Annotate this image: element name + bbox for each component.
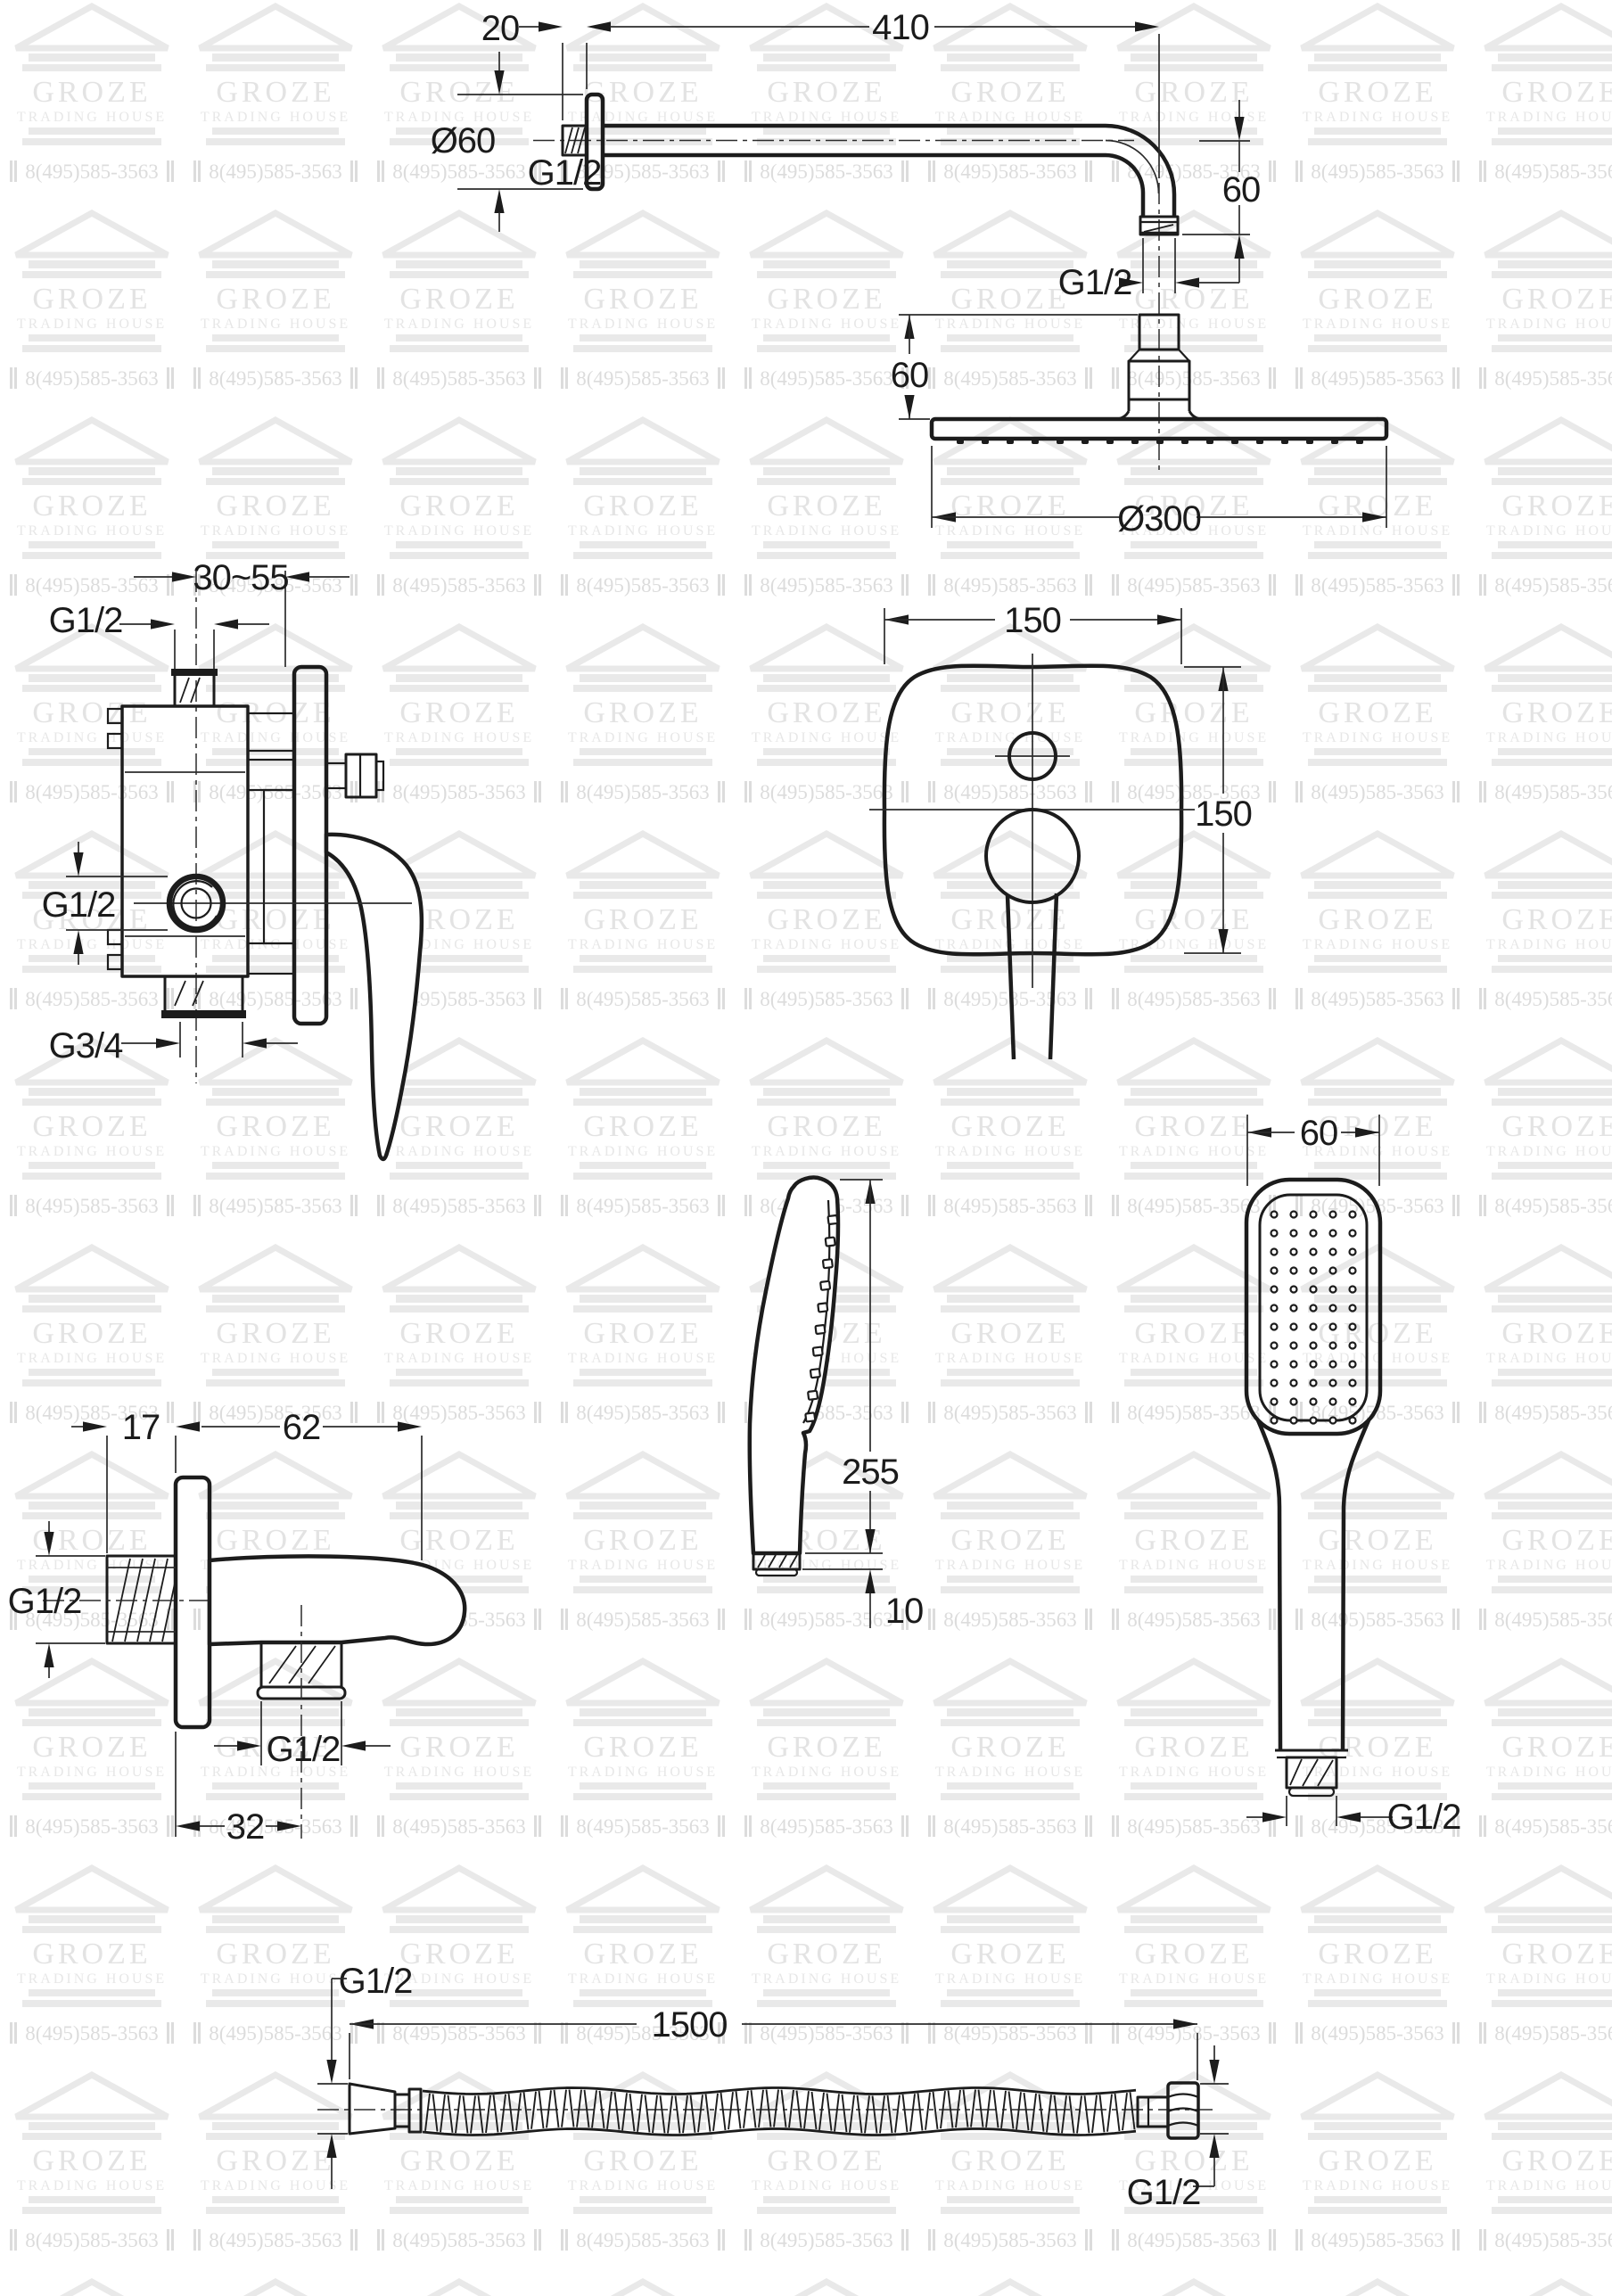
watermark-subtitle: TRADING HOUSE [752,937,901,952]
pediment-icon [934,1661,1086,1703]
watermark-tile: GROZETRADING HOUSE8(495)585-3563 [10,1661,174,1838]
watermark-phone: 8(495)585-3563 [1494,367,1612,390]
pediment-icon [1118,834,1270,876]
watermark-tile: GROZETRADING HOUSE8(495)585-3563 [193,213,358,390]
label-elbow-outlet-thread: G1/2 [267,1730,341,1769]
watermark-phone: 8(495)585-3563 [392,160,525,183]
watermark-phone: 8(495)585-3563 [760,574,892,597]
watermark-subtitle: TRADING HOUSE [1486,1971,1612,1987]
pediment-icon [383,1247,535,1289]
watermark-phone: 8(495)585-3563 [209,1195,341,1217]
technical-drawing-canvas: GROZETRADING HOUSE8(495)585-3563GROZETRA… [0,0,1612,2296]
watermark-subtitle: TRADING HOUSE [568,317,718,332]
pediment-icon [200,2282,351,2296]
dim-arm-stub: 20 [481,9,520,48]
watermark-subtitle: TRADING HOUSE [384,317,534,332]
watermark-phone: 8(495)585-3563 [1127,1402,1260,1424]
watermark-phone: 8(495)585-3563 [943,2022,1076,2045]
watermark-tile: GROZETRADING HOUSE8(495)585-3563 [1479,834,1612,1010]
watermark-tile: GROZETRADING HOUSE8(495)585-3563 [744,420,909,597]
watermark-brand: GROZE [1134,1317,1253,1350]
pediment-icon [16,1661,168,1703]
watermark-tile: GROZETRADING HOUSE8(495)585-3563 [928,420,1092,597]
watermark-phone: 8(495)585-3563 [209,2022,341,2045]
watermark-brand: GROZE [1134,903,1253,936]
pediment-icon [200,1454,351,1496]
watermark-tile: GROZETRADING HOUSE8(495)585-3563 [744,2282,909,2296]
watermark-tile: GROZETRADING HOUSE8(495)585-3563 [1295,420,1460,597]
watermark-brand: GROZE [767,696,885,729]
dim-head-diameter: Ø300 [1117,499,1201,539]
watermark-brand: GROZE [950,1317,1069,1350]
watermark-phone: 8(495)585-3563 [392,367,525,390]
label-hose-right-thread: G1/2 [1127,2173,1201,2212]
watermark-subtitle: TRADING HOUSE [201,110,350,125]
watermark-brand: GROZE [1501,903,1612,936]
watermark-subtitle: TRADING HOUSE [752,1971,901,1987]
label-hose-left-thread: G1/2 [339,1962,413,2001]
watermark-tile: GROZETRADING HOUSE8(495)585-3563 [561,1247,725,1424]
watermark-phone: 8(495)585-3563 [392,1402,525,1424]
watermark-phone: 8(495)585-3563 [25,160,158,183]
watermark-brand: GROZE [216,1317,334,1350]
dim-plate-width: 150 [1004,601,1061,640]
watermark-brand: GROZE [1134,1938,1253,1971]
watermark-tile: GROZETRADING HOUSE8(495)585-3563 [1112,2282,1276,2296]
pediment-icon [1302,627,1453,669]
pediment-icon [1485,6,1612,48]
watermark-phone: 8(495)585-3563 [576,367,709,390]
watermark-phone: 8(495)585-3563 [1127,1609,1260,1631]
watermark-brand: GROZE [399,1524,518,1557]
watermark-tile: GROZETRADING HOUSE8(495)585-3563 [561,627,725,803]
dim-arm-length: 410 [872,8,929,47]
watermark-brand: GROZE [1318,1524,1436,1557]
watermark-brand: GROZE [583,903,702,936]
watermark-subtitle: TRADING HOUSE [568,937,718,952]
watermark-tile: GROZETRADING HOUSE8(495)585-3563 [1479,213,1612,390]
watermark-tile: GROZETRADING HOUSE8(495)585-3563 [1479,1247,1612,1424]
watermark-subtitle: TRADING HOUSE [1303,1558,1452,1573]
watermark-tile: GROZETRADING HOUSE8(495)585-3563 [10,420,174,597]
watermark-tile: GROZETRADING HOUSE8(495)585-3563 [1479,2282,1612,2296]
dim-wand-thread-height: 10 [885,1592,924,1631]
watermark-brand: GROZE [216,490,334,523]
watermark-brand: GROZE [767,490,885,523]
watermark-brand: GROZE [583,696,702,729]
watermark-tile: GROZETRADING HOUSE8(495)585-3563 [744,213,909,390]
watermark-subtitle: TRADING HOUSE [201,1144,350,1159]
watermark-brand: GROZE [1501,1938,1612,1971]
watermark-brand: GROZE [1134,1731,1253,1764]
watermark-phone: 8(495)585-3563 [1311,2229,1443,2251]
watermark-brand: GROZE [1501,1731,1612,1764]
watermark-subtitle: TRADING HOUSE [568,1558,718,1573]
watermark-tile: GROZETRADING HOUSE8(495)585-3563 [561,420,725,597]
pediment-icon [1302,1868,1453,1910]
watermark-tile: GROZETRADING HOUSE8(495)585-3563 [1479,1661,1612,1838]
watermark-tile: GROZETRADING HOUSE8(495)585-3563 [377,2282,541,2296]
pediment-icon [200,420,351,462]
label-arm-outlet-thread: G1/2 [1058,263,1132,302]
watermark-subtitle: TRADING HOUSE [752,2178,901,2193]
watermark-tile: GROZETRADING HOUSE8(495)585-3563 [1295,1454,1460,1631]
watermark-subtitle: TRADING HOUSE [384,1144,534,1159]
watermark-tile: GROZETRADING HOUSE8(495)585-3563 [377,213,541,390]
watermark-phone: 8(495)585-3563 [392,781,525,803]
pediment-icon [383,627,535,669]
pediment-icon [934,2282,1086,2296]
watermark-subtitle: TRADING HOUSE [568,1765,718,1780]
watermark-phone: 8(495)585-3563 [209,988,341,1010]
watermark-subtitle: TRADING HOUSE [1119,937,1269,952]
watermark-tile: GROZETRADING HOUSE8(495)585-3563 [928,1661,1092,1838]
watermark-subtitle: TRADING HOUSE [17,1971,167,1987]
watermark-subtitle: TRADING HOUSE [1303,2178,1452,2193]
pediment-icon [1118,420,1270,462]
pediment-icon [934,1247,1086,1289]
watermark-subtitle: TRADING HOUSE [1486,1351,1612,1366]
watermark-brand: GROZE [216,903,334,936]
pediment-icon [934,834,1086,876]
watermark-brand: GROZE [216,1938,334,1971]
pediment-icon [751,627,902,669]
watermark-phone: 8(495)585-3563 [25,781,158,803]
dim-plate-height: 150 [1195,794,1252,834]
watermark-phone: 8(495)585-3563 [576,574,709,597]
pediment-icon [200,213,351,255]
watermark-tile: GROZETRADING HOUSE8(495)585-3563 [1479,1454,1612,1631]
watermark-phone: 8(495)585-3563 [943,367,1076,390]
watermark-tile: GROZETRADING HOUSE8(495)585-3563 [561,2282,725,2296]
watermark-tile: GROZETRADING HOUSE8(495)585-3563 [1112,834,1276,1010]
watermark-phone: 8(495)585-3563 [1494,1195,1612,1217]
watermark-brand: GROZE [1501,1110,1612,1143]
label-mixer-side-thread: G1/2 [42,885,116,925]
pediment-icon [1485,420,1612,462]
watermark-tile: GROZETRADING HOUSE8(495)585-3563 [1112,1041,1276,1217]
pediment-icon [567,213,719,255]
watermark-tile: GROZETRADING HOUSE8(495)585-3563 [928,1868,1092,2045]
watermark-tile: GROZETRADING HOUSE8(495)585-3563 [744,1661,909,1838]
pediment-icon [1302,2282,1453,2296]
pediment-icon [567,2075,719,2117]
watermark-brand: GROZE [1501,1524,1612,1557]
watermark-tile: GROZETRADING HOUSE8(495)585-3563 [10,1247,174,1424]
watermark-subtitle: TRADING HOUSE [752,110,901,125]
watermark-phone: 8(495)585-3563 [943,1195,1076,1217]
watermark-tile: GROZETRADING HOUSE8(495)585-3563 [561,213,725,390]
watermark-phone: 8(495)585-3563 [209,160,341,183]
watermark-brand: GROZE [399,1317,518,1350]
pediment-icon [567,1041,719,1082]
pediment-icon [200,2075,351,2117]
watermark-subtitle: TRADING HOUSE [201,1971,350,1987]
watermark-phone: 8(495)585-3563 [943,1815,1076,1838]
pediment-icon [1485,2282,1612,2296]
watermark-brand: GROZE [216,2144,334,2177]
pediment-icon [200,1041,351,1082]
pediment-icon [1485,213,1612,255]
watermark-subtitle: TRADING HOUSE [1119,1144,1269,1159]
pediment-icon [1118,1454,1270,1496]
watermark-tile: GROZETRADING HOUSE8(495)585-3563 [1295,2282,1460,2296]
watermark-subtitle: TRADING HOUSE [1303,523,1452,539]
pediment-icon [567,1454,719,1496]
watermark-phone: 8(495)585-3563 [760,2022,892,2045]
watermark-phone: 8(495)585-3563 [25,367,158,390]
watermark-brand: GROZE [32,1110,151,1143]
pediment-icon [383,1661,535,1703]
watermark-subtitle: TRADING HOUSE [1486,2178,1612,2193]
pediment-icon [934,1041,1086,1082]
pediment-icon [200,1661,351,1703]
pediment-icon [1485,834,1612,876]
watermark-tile: GROZETRADING HOUSE8(495)585-3563 [10,1041,174,1217]
watermark-subtitle: TRADING HOUSE [17,523,167,539]
watermark-brand: GROZE [1134,1110,1253,1143]
watermark-subtitle: TRADING HOUSE [568,110,718,125]
watermark-tile: GROZETRADING HOUSE8(495)585-3563 [193,6,358,183]
watermark-subtitle: TRADING HOUSE [17,110,167,125]
watermark-phone: 8(495)585-3563 [576,1195,709,1217]
watermark-subtitle: TRADING HOUSE [201,1351,350,1366]
watermark-phone: 8(495)585-3563 [576,1402,709,1424]
watermark-brand: GROZE [1134,76,1253,109]
watermark-subtitle: TRADING HOUSE [568,523,718,539]
watermark-brand: GROZE [950,1110,1069,1143]
watermark-brand: GROZE [1501,490,1612,523]
watermark-tile: GROZETRADING HOUSE8(495)585-3563 [377,1247,541,1424]
watermark-tile: GROZETRADING HOUSE8(495)585-3563 [1479,6,1612,183]
watermark-tile: GROZETRADING HOUSE8(495)585-3563 [928,1454,1092,1631]
watermark-brand: GROZE [216,76,334,109]
watermark-tile: GROZETRADING HOUSE8(495)585-3563 [10,627,174,803]
watermark-subtitle: TRADING HOUSE [935,110,1085,125]
watermark-brand: GROZE [583,283,702,316]
watermark-brand: GROZE [1501,1317,1612,1350]
watermark-tile: GROZETRADING HOUSE8(495)585-3563 [193,2075,358,2251]
watermark-subtitle: TRADING HOUSE [17,1351,167,1366]
watermark-tile: GROZETRADING HOUSE8(495)585-3563 [1112,627,1276,803]
label-hand-thread: G1/2 [1387,1798,1461,1837]
watermark-phone: 8(495)585-3563 [25,988,158,1010]
watermark-brand: GROZE [399,2144,518,2177]
watermark-phone: 8(495)585-3563 [1311,160,1443,183]
watermark-phone: 8(495)585-3563 [1494,2022,1612,2045]
watermark-brand: GROZE [216,1110,334,1143]
watermark-phone: 8(495)585-3563 [576,1815,709,1838]
watermark-phone: 8(495)585-3563 [1494,1402,1612,1424]
watermark-phone: 8(495)585-3563 [1127,1815,1260,1838]
watermark-phone: 8(495)585-3563 [1311,1609,1443,1631]
watermark-brand: GROZE [1501,2144,1612,2177]
pediment-icon [1302,2075,1453,2117]
dim-flange-diameter: Ø60 [431,121,496,160]
watermark-brand: GROZE [32,1317,151,1350]
watermark-tile: GROZETRADING HOUSE8(495)585-3563 [1479,1041,1612,1217]
watermark-phone: 8(495)585-3563 [209,781,341,803]
pediment-icon [383,420,535,462]
pediment-icon [1302,834,1453,876]
watermark-subtitle: TRADING HOUSE [1303,1971,1452,1987]
watermark-tile: GROZETRADING HOUSE8(495)585-3563 [10,1868,174,2045]
watermark-tile: GROZETRADING HOUSE8(495)585-3563 [1112,213,1276,390]
pediment-icon [567,1247,719,1289]
watermark-phone: 8(495)585-3563 [576,1609,709,1631]
watermark-brand: GROZE [767,283,885,316]
watermark-brand: GROZE [1501,283,1612,316]
watermark-subtitle: TRADING HOUSE [935,1971,1085,1987]
watermark-subtitle: TRADING HOUSE [17,1765,167,1780]
watermark-brand: GROZE [950,283,1069,316]
pediment-icon [751,834,902,876]
pediment-icon [567,2282,719,2296]
watermark-phone: 8(495)585-3563 [943,574,1076,597]
watermark-phone: 8(495)585-3563 [209,1402,341,1424]
watermark-tile: GROZETRADING HOUSE8(495)585-3563 [1112,1661,1276,1838]
watermark-phone: 8(495)585-3563 [760,367,892,390]
pediment-icon [934,1454,1086,1496]
pediment-icon [383,213,535,255]
watermark-brand: GROZE [32,76,151,109]
watermark-brand: GROZE [767,1731,885,1764]
pediment-icon [16,2075,168,2117]
watermark-subtitle: TRADING HOUSE [752,1765,901,1780]
watermark-subtitle: TRADING HOUSE [935,730,1085,745]
pediment-icon [200,6,351,48]
watermark-tile: GROZETRADING HOUSE8(495)585-3563 [561,1454,725,1631]
watermark-subtitle: TRADING HOUSE [17,2178,167,2193]
watermark-phone: 8(495)585-3563 [1494,2229,1612,2251]
pediment-icon [383,1454,535,1496]
watermark-subtitle: TRADING HOUSE [1119,110,1269,125]
pediment-icon [1302,1247,1453,1289]
pediment-icon [16,2282,168,2296]
watermark-tile: GROZETRADING HOUSE8(495)585-3563 [561,1041,725,1217]
label-elbow-inlet-thread: G1/2 [8,1582,82,1621]
pediment-icon [16,1247,168,1289]
watermark-subtitle: TRADING HOUSE [752,523,901,539]
dim-wand-length: 255 [842,1452,899,1492]
watermark-brand: GROZE [399,490,518,523]
watermark-phone: 8(495)585-3563 [1494,160,1612,183]
watermark-tile: GROZETRADING HOUSE8(495)585-3563 [928,627,1092,803]
watermark-tile: GROZETRADING HOUSE8(495)585-3563 [1479,1868,1612,2045]
pediment-icon [567,1661,719,1703]
watermark-phone: 8(495)585-3563 [1494,1815,1612,1838]
watermark-tile: GROZETRADING HOUSE8(495)585-3563 [561,834,725,1010]
drawing-sheet: GROZETRADING HOUSE8(495)585-3563GROZETRA… [0,0,1612,2296]
pediment-icon [1302,420,1453,462]
watermark-brand: GROZE [32,1731,151,1764]
watermark-phone: 8(495)585-3563 [576,2229,709,2251]
watermark-phone: 8(495)585-3563 [209,367,341,390]
watermark-subtitle: TRADING HOUSE [17,317,167,332]
watermark-tile: GROZETRADING HOUSE8(495)585-3563 [1295,1247,1460,1424]
watermark-tile: GROZETRADING HOUSE8(495)585-3563 [377,1868,541,2045]
pediment-icon [751,2282,902,2296]
watermark-subtitle: TRADING HOUSE [384,1351,534,1366]
watermark-phone: 8(495)585-3563 [943,781,1076,803]
watermark-phone: 8(495)585-3563 [760,988,892,1010]
watermark-phone: 8(495)585-3563 [392,1815,525,1838]
watermark-brand: GROZE [1318,903,1436,936]
watermark-brand: GROZE [216,283,334,316]
watermark-tile: GROZETRADING HOUSE8(495)585-3563 [1295,834,1460,1010]
watermark-tile: GROZETRADING HOUSE8(495)585-3563 [1295,1868,1460,2045]
pediment-icon [1485,2075,1612,2117]
watermark-subtitle: TRADING HOUSE [17,1558,167,1573]
watermark-tile: GROZETRADING HOUSE8(495)585-3563 [377,1661,541,1838]
watermark-phone: 8(495)585-3563 [392,574,525,597]
watermark-subtitle: TRADING HOUSE [1486,730,1612,745]
watermark-phone: 8(495)585-3563 [760,1609,892,1631]
watermark-brand: GROZE [950,1938,1069,1971]
watermark-subtitle: TRADING HOUSE [752,1144,901,1159]
watermark-brand: GROZE [399,283,518,316]
watermark-subtitle: TRADING HOUSE [1119,1765,1269,1780]
watermark-brand: GROZE [399,1110,518,1143]
pediment-icon [1485,1041,1612,1082]
watermark-phone: 8(495)585-3563 [392,2022,525,2045]
watermark-brand: GROZE [1134,283,1253,316]
pediment-icon [383,2282,535,2296]
watermark-tile: GROZETRADING HOUSE8(495)585-3563 [1479,420,1612,597]
pediment-icon [16,1454,168,1496]
watermark-phone: 8(495)585-3563 [1127,2022,1260,2045]
watermark-brand: GROZE [767,76,885,109]
watermark-tile: GROZETRADING HOUSE8(495)585-3563 [1112,6,1276,183]
watermark-brand: GROZE [950,1524,1069,1557]
watermark-brand: GROZE [399,696,518,729]
watermark-tile: GROZETRADING HOUSE8(495)585-3563 [377,627,541,803]
watermark-phone: 8(495)585-3563 [25,1195,158,1217]
watermark-phone: 8(495)585-3563 [1127,2229,1260,2251]
watermark-subtitle: TRADING HOUSE [1119,1971,1269,1987]
watermark-phone: 8(495)585-3563 [760,781,892,803]
watermark-phone: 8(495)585-3563 [1311,2022,1443,2045]
pediment-icon [1485,1454,1612,1496]
watermark-brand: GROZE [583,2144,702,2177]
watermark-subtitle: TRADING HOUSE [17,1144,167,1159]
pediment-icon [567,1868,719,1910]
pediment-icon [934,1868,1086,1910]
pediment-icon [1485,1247,1612,1289]
watermark-subtitle: TRADING HOUSE [384,2178,534,2193]
watermark-tile: GROZETRADING HOUSE8(495)585-3563 [1479,2075,1612,2251]
watermark-subtitle: TRADING HOUSE [935,1765,1085,1780]
watermark-tile: GROZETRADING HOUSE8(495)585-3563 [1112,1868,1276,2045]
watermark-subtitle: TRADING HOUSE [935,2178,1085,2193]
watermark-brand: GROZE [1318,2144,1436,2177]
watermark-phone: 8(495)585-3563 [1127,1195,1260,1217]
pediment-icon [1485,1868,1612,1910]
watermark-subtitle: TRADING HOUSE [568,1351,718,1366]
handshower-front-drawing: 60 G1/2 [1246,1114,1460,1837]
pediment-icon [1118,627,1270,669]
watermark-subtitle: TRADING HOUSE [935,1351,1085,1366]
watermark-brand: GROZE [1318,283,1436,316]
watermark-tile: GROZETRADING HOUSE8(495)585-3563 [10,2282,174,2296]
watermark-subtitle: TRADING HOUSE [384,1765,534,1780]
watermark-phone: 8(495)585-3563 [1127,988,1260,1010]
pediment-icon [751,1041,902,1082]
pediment-icon [1118,1868,1270,1910]
watermark-subtitle: TRADING HOUSE [1119,730,1269,745]
watermark-tile: GROZETRADING HOUSE8(495)585-3563 [193,627,358,803]
watermark-brand: GROZE [32,283,151,316]
